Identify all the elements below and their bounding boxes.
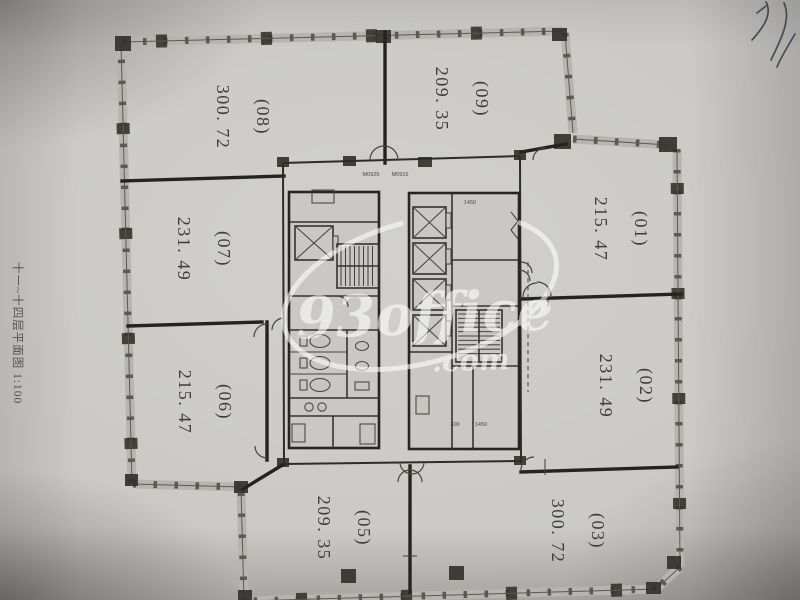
room-id: (02) <box>635 368 656 404</box>
door-arc <box>521 262 532 273</box>
room-label-01: (01) 215. 47 <box>591 197 651 262</box>
room-area: 300. 72 <box>548 499 568 564</box>
room-label-03: (03) 300. 72 <box>548 499 608 564</box>
watermark-brand: 93office <box>295 276 554 352</box>
dimension-label: 1450 <box>464 200 476 206</box>
room-area: 215. 47 <box>591 197 611 262</box>
door-arc <box>254 324 267 337</box>
handwritten-mark <box>752 2 795 67</box>
room-id: (05) <box>353 510 374 546</box>
door-arc <box>255 446 267 458</box>
room-id: (09) <box>471 81 492 117</box>
room-label-02: (02) 231. 49 <box>596 354 656 419</box>
door-arc <box>398 470 410 482</box>
door-tag: M0925 <box>362 172 379 178</box>
room-id: (06) <box>214 384 235 420</box>
watermark-suffix: .com <box>431 342 510 379</box>
dimension-label: 300 <box>450 422 459 428</box>
room-id: (01) <box>630 211 651 247</box>
svg-text:十一~十四层平面图 1:100: 十一~十四层平面图 1:100 <box>11 262 25 404</box>
room-area: 300. 72 <box>213 85 233 150</box>
room-area: 231. 49 <box>174 217 194 282</box>
sheet-caption: 十一~十四层平面图 1:100 <box>11 262 25 404</box>
room-id: (03) <box>587 513 608 549</box>
room-area: 209. 35 <box>432 67 452 132</box>
room-label-07: (07) 231. 49 <box>174 217 234 282</box>
door-arc <box>370 146 384 160</box>
room-id: (07) <box>213 231 234 267</box>
room-area: 209. 35 <box>314 496 334 561</box>
room-label-09: (09) 209. 35 <box>432 67 492 132</box>
room-area: 231. 49 <box>596 354 616 419</box>
door-tag: M0915 <box>391 172 408 178</box>
room-area: 215. 47 <box>175 370 195 435</box>
room-label-06: (06) 215. 47 <box>175 370 235 435</box>
room-label-05: (05) 209. 35 <box>314 496 374 561</box>
room-label-08: (08) 300. 72 <box>213 85 273 150</box>
floor-plan-drawing: M0925 M0915 <box>0 0 800 600</box>
room-id: (08) <box>252 99 273 135</box>
door-arc <box>412 462 424 474</box>
door-arc <box>410 470 422 482</box>
dimension-label: 1450 <box>475 422 487 428</box>
